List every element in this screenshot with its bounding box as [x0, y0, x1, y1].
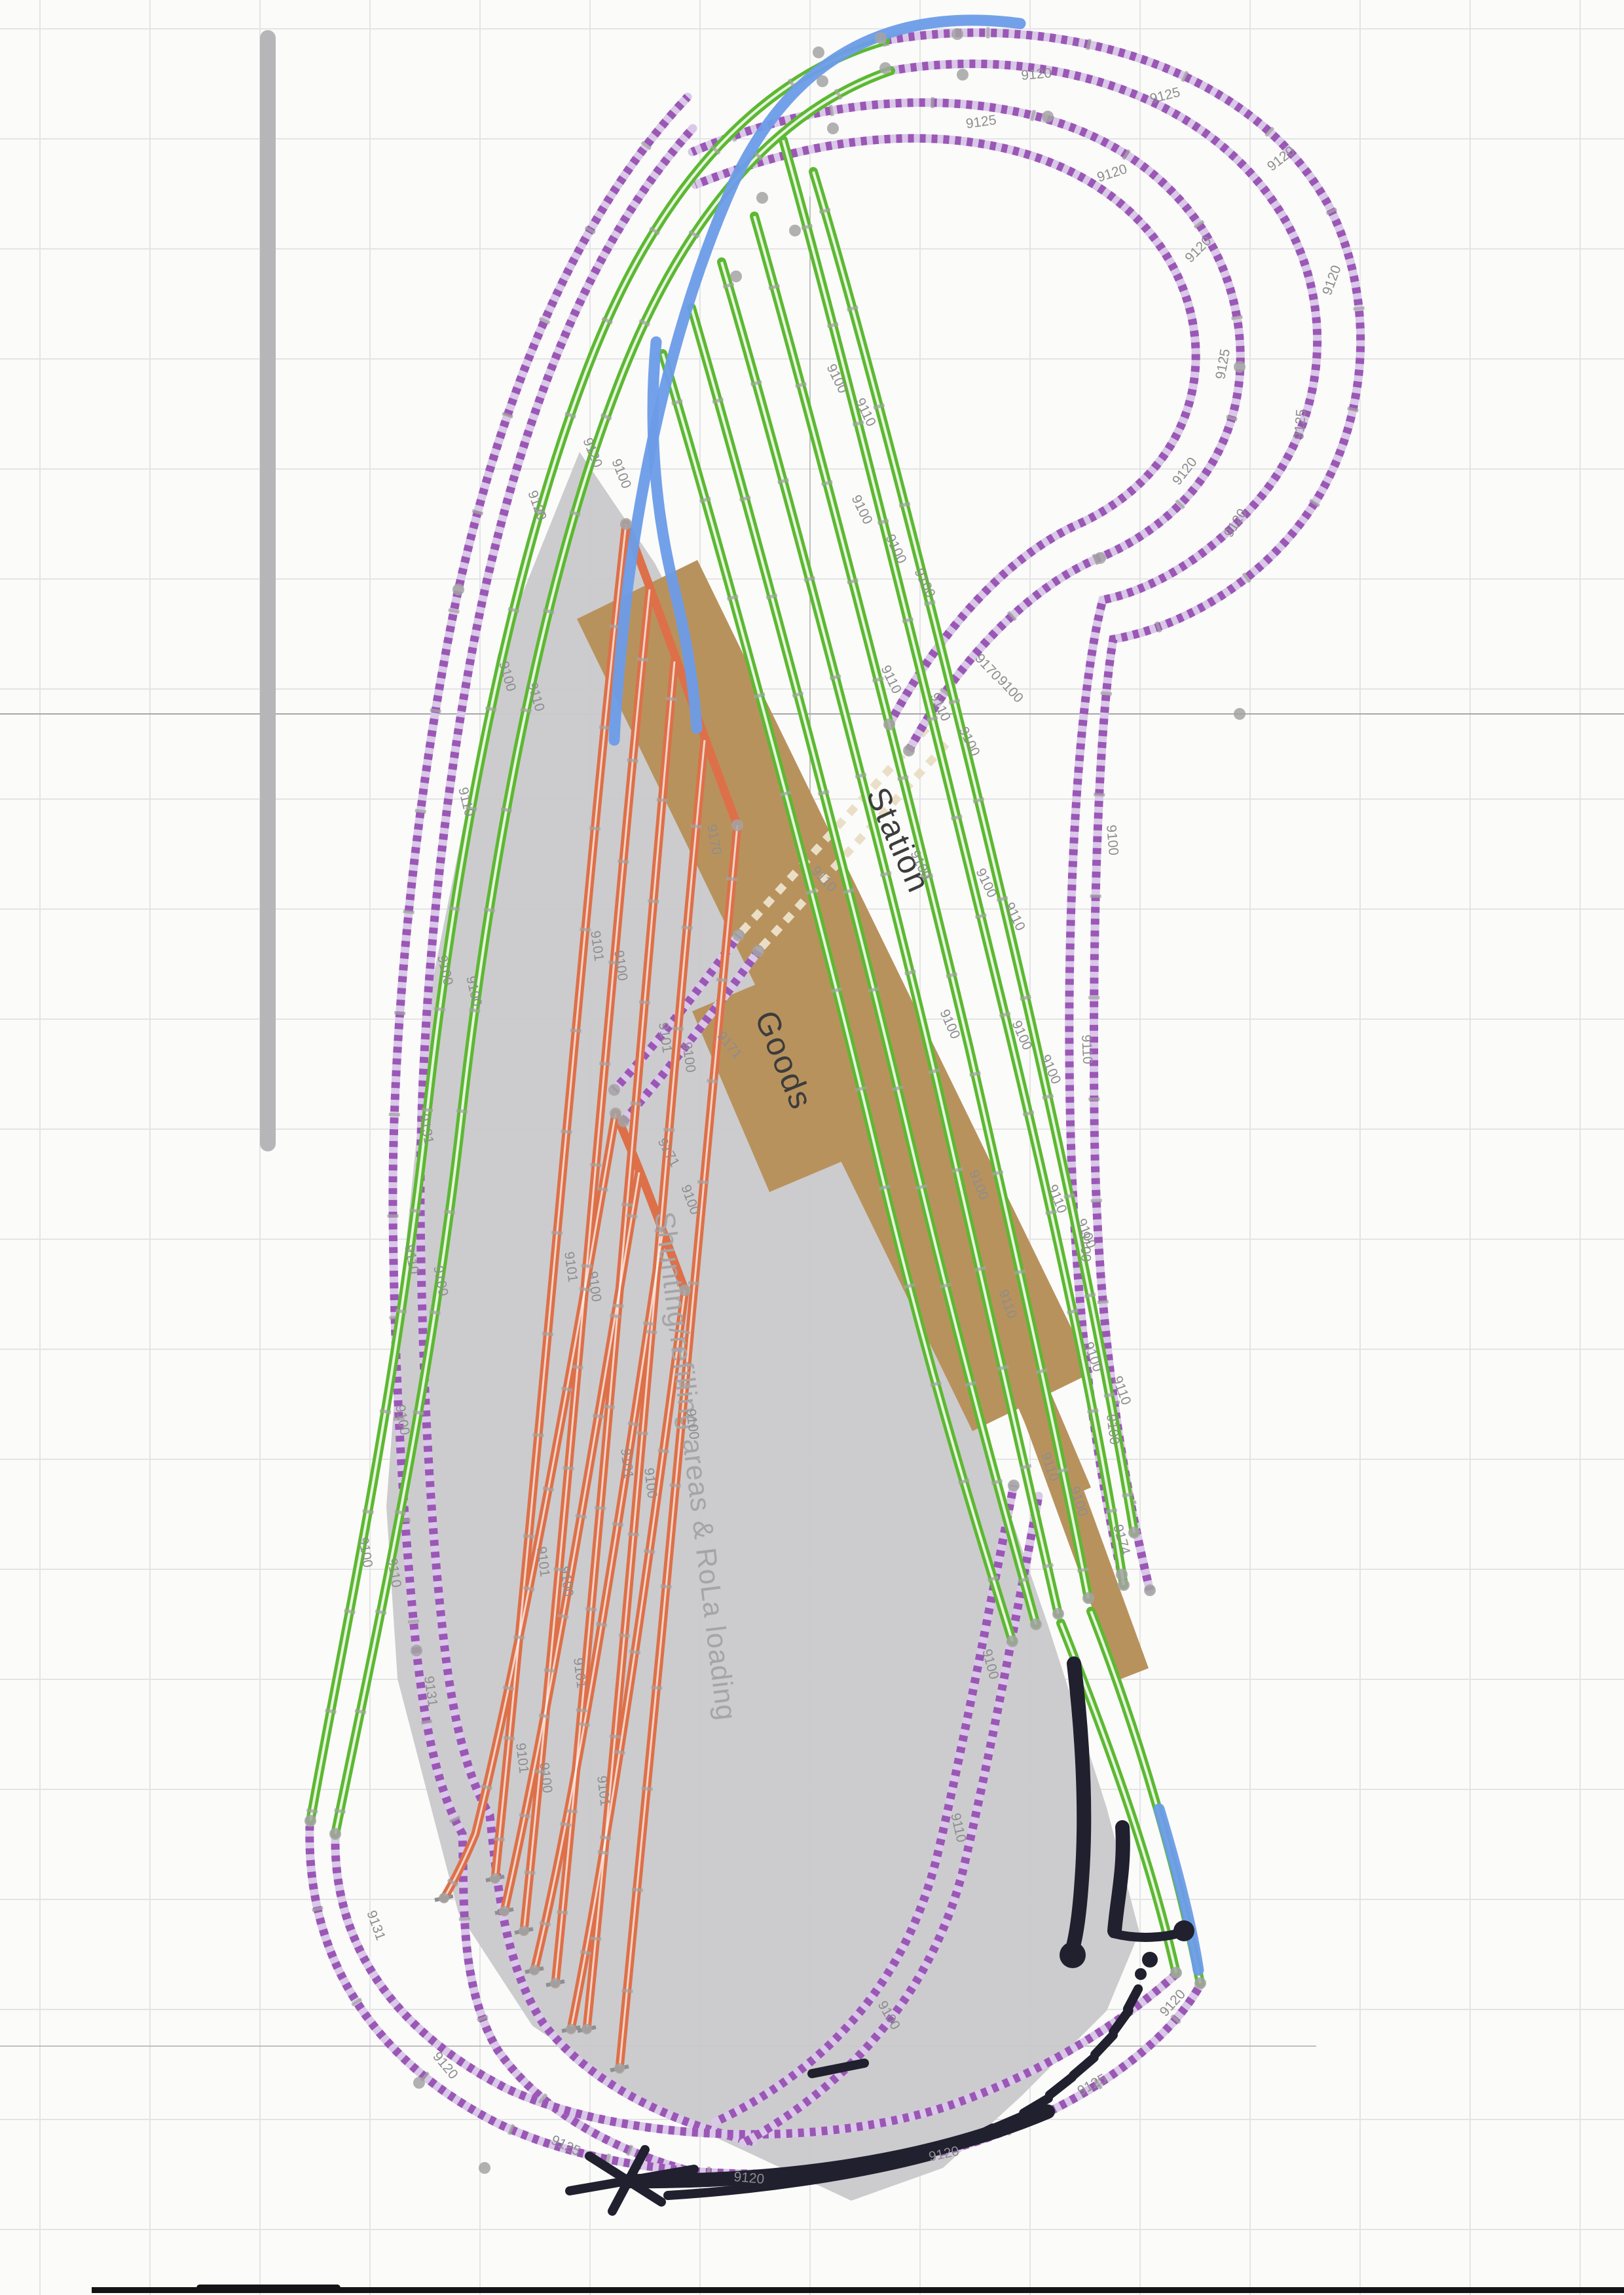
rail-joiner-icon: [1030, 1618, 1042, 1630]
rail-joiner-icon: [620, 518, 632, 530]
part-number-label: 9100: [849, 493, 876, 527]
rail-joiner-icon: [951, 28, 963, 40]
buffer-stop-icon: [490, 1873, 500, 1884]
part-number-label: 9125: [1291, 409, 1309, 441]
part-number-label: 9100: [1103, 1413, 1122, 1446]
rail-joiner-icon: [817, 75, 828, 87]
buffer-stop-icon: [550, 1978, 561, 1988]
rail-joiner-icon: [1234, 708, 1246, 720]
buffer-stop-icon: [581, 2024, 592, 2034]
part-number-label: 9120: [1020, 65, 1052, 83]
rail-joiner-icon: [789, 225, 801, 236]
rail-joiner-icon: [452, 584, 464, 595]
scanned-track-plan-page: Station Goods Shunting/refilling areas &…: [0, 0, 1624, 2295]
buffer-stop-icon: [614, 2063, 625, 2074]
rail-joiner-icon: [730, 271, 742, 282]
marker-dash: [1113, 2011, 1128, 2032]
rail-joiner-icon: [756, 192, 768, 204]
rail-joiner-icon: [733, 929, 745, 941]
rail-joiner-icon: [883, 718, 895, 730]
buffer-stop-icon: [566, 2024, 576, 2034]
part-number-label: 9125: [1213, 348, 1233, 381]
part-number-label: 9125: [1149, 84, 1182, 107]
rail-joiner-icon: [610, 1108, 621, 1119]
rail-joiner-icon: [413, 2077, 425, 2089]
rail-joiner-icon: [608, 1084, 620, 1096]
rail-joiner-icon: [903, 745, 915, 756]
part-number-label: 9120: [1095, 161, 1129, 185]
baseboard-edge-bar: [260, 30, 276, 1151]
buffer-stop-icon: [499, 1906, 509, 1916]
part-number-label: 9125: [549, 2133, 583, 2159]
rail-joiner-icon: [1116, 1569, 1128, 1580]
rail-joiner-icon: [1052, 1608, 1064, 1620]
rail-joiner-icon: [879, 62, 891, 74]
rail-joiner-icon: [304, 1815, 316, 1827]
rail-joiner-icon: [479, 2162, 490, 2174]
rail-joiner-icon: [1194, 1977, 1206, 1989]
rail-joiner-icon: [1094, 552, 1106, 564]
part-number-label: 9100: [608, 457, 634, 491]
marker-dash: [1073, 2058, 1094, 2076]
rail-joiner-icon: [1128, 1527, 1140, 1539]
marker-dash: [1050, 2078, 1072, 2095]
part-number-label: 9100: [912, 566, 938, 600]
rail-joiner-icon: [411, 1645, 422, 1656]
rail-joiner-icon: [1234, 361, 1246, 373]
rail-joiner-icon: [1008, 1480, 1020, 1491]
part-number-label: 9100: [1103, 824, 1121, 856]
part-number-label: 9100: [1077, 1231, 1094, 1261]
rail-joiner-icon: [1144, 1584, 1156, 1596]
rail-joiner-icon: [731, 819, 743, 831]
buffer-stop-icon: [529, 1965, 540, 1975]
part-number-label: 9120: [733, 2169, 766, 2187]
rail-joiner-icon: [1170, 1967, 1182, 1979]
rail-joiner-icon: [752, 945, 764, 957]
rail-joiner-icon: [1042, 111, 1054, 122]
rail-joiner-icon: [1082, 1592, 1094, 1604]
buffer-stop-icon: [519, 1926, 529, 1936]
rail-joiner-icon: [957, 69, 969, 81]
rail-joiner-icon: [813, 47, 824, 58]
part-number-label: 9120: [1319, 263, 1344, 297]
rail-joiner-icon: [875, 32, 887, 44]
rail-joiner-icon: [329, 1828, 341, 1840]
part-number-label: 9125: [965, 113, 997, 132]
rail-joiner-icon: [1006, 1635, 1018, 1647]
part-number-label: 9131: [363, 1909, 388, 1943]
buffer-stop-icon: [439, 1893, 449, 1903]
rail-joiner-icon: [1118, 1579, 1130, 1591]
scan-edge-artifact: [196, 2285, 341, 2293]
part-number-label: 9110: [1079, 1034, 1095, 1064]
rail-joiner-icon: [827, 122, 839, 134]
track-plan-canvas: Station Goods Shunting/refilling areas &…: [0, 0, 1624, 2295]
